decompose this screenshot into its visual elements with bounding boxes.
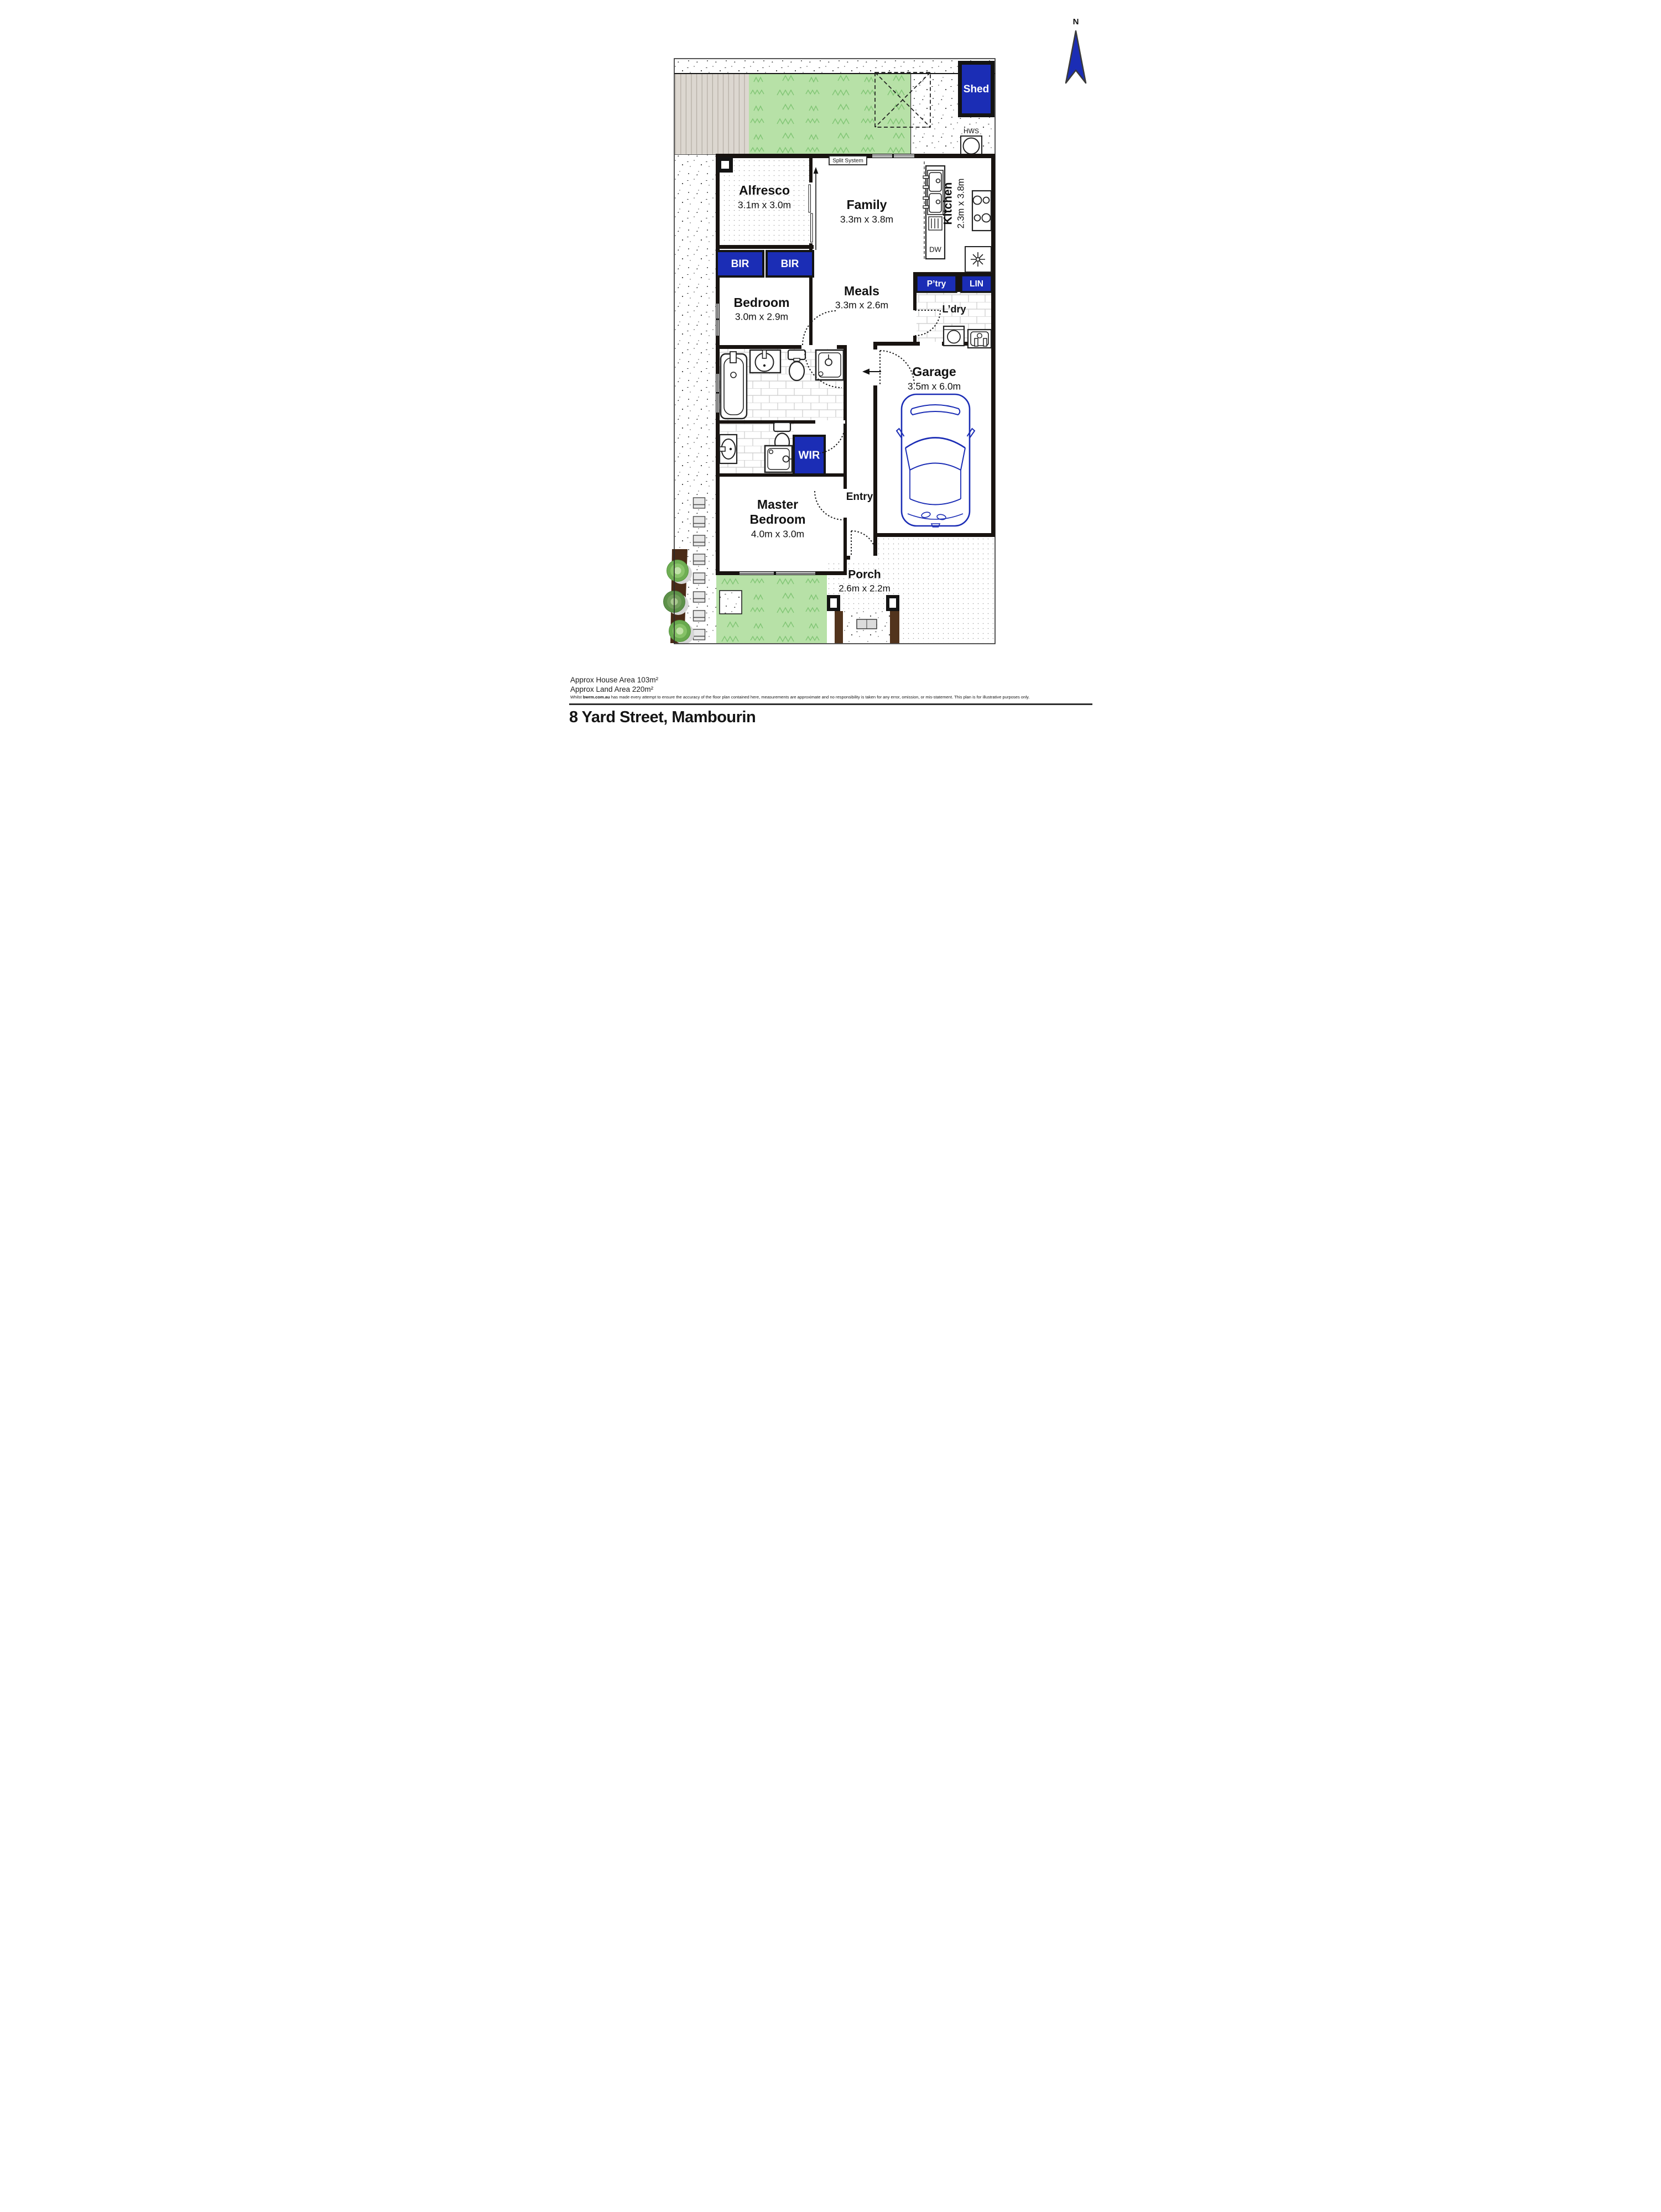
bedroom-label: Bedroom bbox=[734, 295, 790, 310]
house-area: Approx House Area 103m² bbox=[570, 675, 658, 685]
bedroom-dims: 3.0m x 2.9m bbox=[735, 311, 788, 322]
laundry-tub-icon bbox=[968, 330, 991, 348]
split-system-label: Split System bbox=[832, 158, 863, 164]
path-garden-right bbox=[890, 611, 899, 643]
window-master bbox=[740, 571, 815, 575]
property-address: 8 Yard Street, Mambourin bbox=[569, 708, 756, 727]
alfresco-dims: 3.1m x 3.0m bbox=[738, 200, 791, 211]
disclaimer: Whilst bwrm.com.au has made every attemp… bbox=[570, 695, 1029, 700]
window-bathroom bbox=[716, 374, 720, 413]
rear-deck bbox=[675, 74, 749, 155]
alfresco-pier bbox=[717, 157, 733, 173]
bir-label: BIR bbox=[781, 258, 799, 270]
shed: Shed bbox=[958, 61, 994, 117]
shower-icon bbox=[765, 446, 792, 472]
footer-divider bbox=[569, 703, 1092, 705]
hws-label: HWS bbox=[964, 127, 979, 135]
family-label: Family bbox=[847, 197, 887, 212]
disclaimer-brand: bwrm.com.au bbox=[583, 695, 610, 700]
north-label: N bbox=[1073, 17, 1079, 27]
shed-label: Shed bbox=[964, 84, 989, 95]
washing-machine-icon bbox=[944, 326, 964, 346]
laundry-fixtures bbox=[944, 326, 991, 348]
garage-label: Garage bbox=[912, 364, 956, 379]
garage-dims: 3.5m x 6.0m bbox=[908, 381, 961, 392]
kitchen-label: Kitchen bbox=[942, 182, 955, 225]
corner-pantry-icon bbox=[965, 247, 991, 272]
laundry-label: L’dry bbox=[942, 304, 966, 315]
basin-icon bbox=[720, 435, 737, 463]
dishwasher-label: DW bbox=[929, 245, 941, 253]
bathtub-icon bbox=[721, 352, 747, 419]
master-label-line2: Bedroom bbox=[750, 512, 806, 526]
wir-label: WIR bbox=[799, 449, 820, 461]
meals-dims: 3.3m x 2.6m bbox=[835, 300, 888, 311]
porch-pillar bbox=[827, 595, 840, 611]
land-area: Approx Land Area 220m² bbox=[570, 685, 658, 694]
master-label-line1: Master bbox=[757, 497, 798, 512]
toilet-icon bbox=[788, 350, 805, 380]
front-yard-pad bbox=[720, 591, 742, 614]
porch-dims: 2.6m x 2.2m bbox=[839, 583, 891, 593]
left-side-path bbox=[675, 155, 718, 572]
alfresco-label: Alfresco bbox=[739, 183, 790, 197]
floorplan-page: Clothesline Shed HWS N bbox=[554, 0, 1107, 737]
split-system-unit: Split System bbox=[829, 156, 867, 165]
vanity-icon bbox=[750, 350, 780, 373]
rear-concrete-strip bbox=[675, 59, 994, 74]
entry-label: Entry bbox=[846, 491, 873, 503]
bir-label: BIR bbox=[731, 258, 749, 270]
cooktop-icon bbox=[972, 191, 991, 231]
kitchen-dims: 2.3m x 3.8m bbox=[956, 179, 966, 229]
linen-label: LIN bbox=[970, 279, 983, 289]
disclaimer-text: Whilst bbox=[570, 695, 583, 700]
front-step bbox=[857, 619, 877, 629]
area-summary: Approx House Area 103m² Approx Land Area… bbox=[570, 675, 658, 694]
pantry-label: P’try bbox=[927, 279, 946, 289]
kitchen-drainer bbox=[929, 217, 942, 230]
hws-unit-icon: HWS bbox=[961, 127, 982, 156]
floorplan-drawing: Clothesline Shed HWS N bbox=[554, 0, 1107, 737]
porch-pillar bbox=[886, 595, 899, 611]
disclaimer-text: has made every attempt to ensure the acc… bbox=[610, 695, 1030, 700]
path-garden-left bbox=[835, 611, 843, 643]
meals-label: Meals bbox=[844, 284, 879, 298]
family-dims: 3.3m x 3.8m bbox=[840, 214, 893, 225]
porch-label: Porch bbox=[848, 568, 881, 581]
window-family bbox=[872, 154, 914, 158]
backyard-grass bbox=[749, 74, 910, 156]
shower-icon bbox=[816, 350, 843, 380]
window-bedroom bbox=[716, 304, 720, 336]
master-dims: 4.0m x 3.0m bbox=[751, 529, 804, 540]
